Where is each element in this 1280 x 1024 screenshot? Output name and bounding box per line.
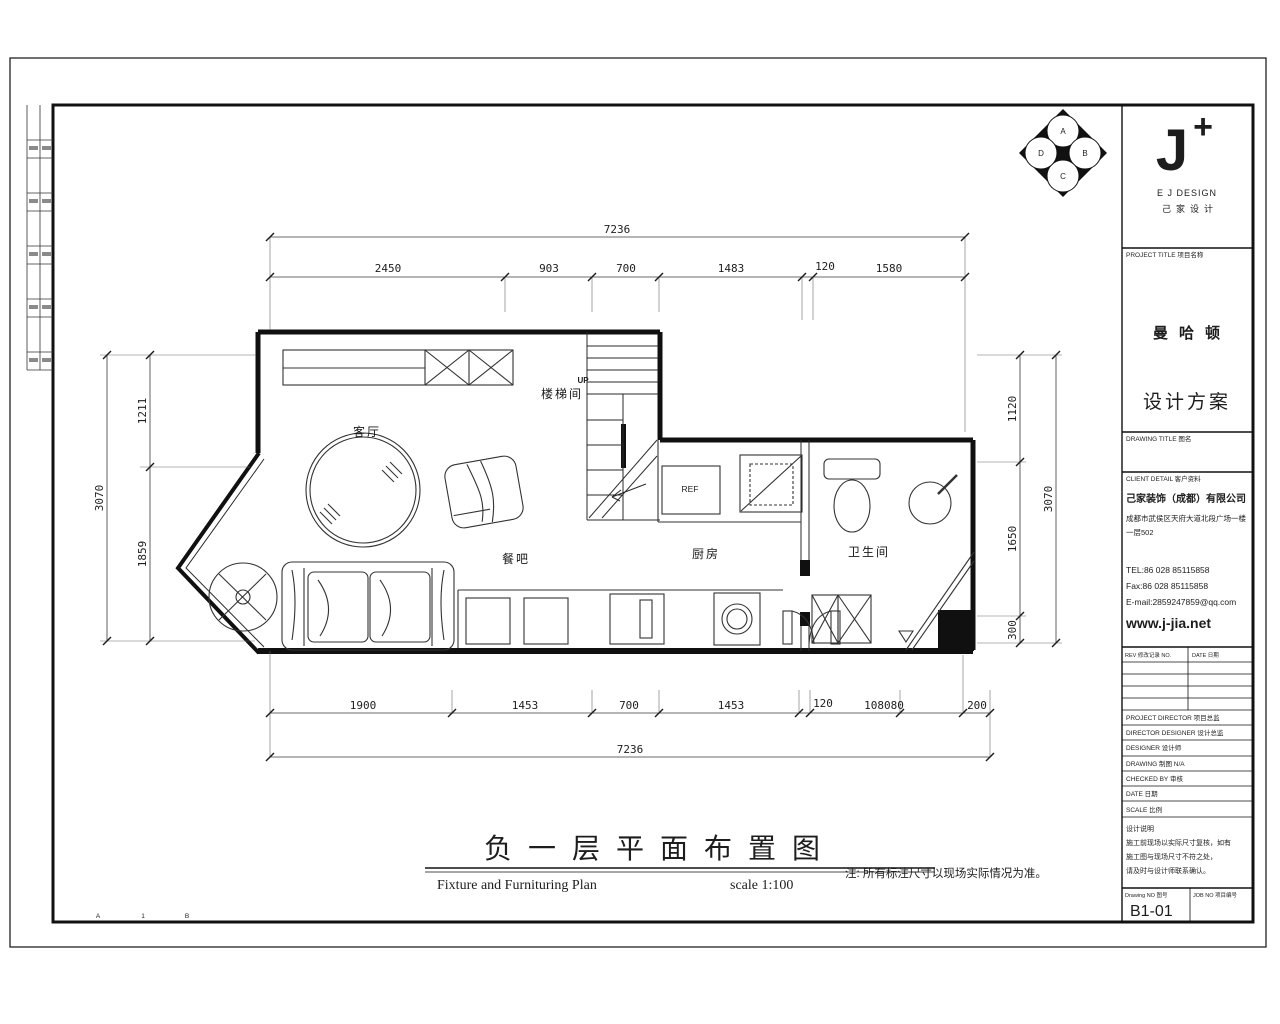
dim-bottom-seg: 700 xyxy=(619,699,639,712)
dim-bottom-seg: 108080 xyxy=(864,699,904,712)
armchair xyxy=(443,454,525,530)
field-director-designer: DIRECTOR DESIGNER 设计总监 xyxy=(1126,728,1224,737)
job-no-label: JOB NO 项目编号 xyxy=(1193,891,1238,899)
field-checked-by: CHECKED BY 审核 xyxy=(1126,774,1183,783)
sheet-scale: scale 1:100 xyxy=(730,878,793,893)
dim-top-seg: 1483 xyxy=(718,262,745,275)
room-label-stair: 楼梯间 xyxy=(541,386,583,401)
columns xyxy=(621,424,974,651)
dim-bottom-seg: 1900 xyxy=(350,699,377,712)
tb-note-line: 请及时与设计师联系确认。 xyxy=(1126,866,1210,875)
logo-stamp: A B C D xyxy=(1019,109,1107,197)
dim-right-seg: 1650 xyxy=(1006,526,1019,553)
client-tel: TEL:86 028 85115858 xyxy=(1126,565,1210,575)
dim-bottom-seg: 1453 xyxy=(512,699,539,712)
stamp-letter-b: B xyxy=(1082,149,1087,158)
logo-j: J xyxy=(1156,118,1188,183)
room-label-living: 客厅 xyxy=(353,424,381,439)
bar-counter xyxy=(458,590,783,648)
client-header: CLIENT DETAIL 客户资料 xyxy=(1126,474,1201,483)
stair xyxy=(587,332,660,520)
floor-plan: 客厅 楼梯间 餐吧 厨房 卫生间 REF UP xyxy=(178,332,974,653)
project-name: 曼哈顿 xyxy=(1153,324,1231,342)
label-ref: REF xyxy=(682,484,699,494)
logo-plus: + xyxy=(1193,108,1213,146)
date-header: DATE 日期 xyxy=(1192,652,1219,659)
tb-note-line: 设计说明 xyxy=(1126,824,1154,833)
tb-note-line: 施工图与现场尺寸不符之处， xyxy=(1126,852,1217,861)
corner-round-table xyxy=(209,563,277,631)
sheet-title-cn: 负一层平面布置图 xyxy=(484,833,836,864)
sheet-borders xyxy=(10,58,1266,947)
dim-left-seg: 1211 xyxy=(136,398,149,425)
dim-right-seg: 300 xyxy=(1006,620,1019,640)
drawing-sheet: A 1 B xyxy=(0,0,1280,1024)
client-website: www.j-jia.net xyxy=(1125,615,1211,631)
grid-ref-a: A xyxy=(96,913,101,920)
client-address1: 成都市武侯区天府大道北段广场一楼 xyxy=(1126,513,1246,523)
wardrobe xyxy=(283,350,513,385)
walls xyxy=(178,332,973,653)
grid-refs: A 1 B xyxy=(96,913,189,920)
field-date: DATE 日期 xyxy=(1126,790,1158,798)
grid-ref-1: 1 xyxy=(141,913,145,920)
logo-en: E J DESIGN xyxy=(1157,188,1217,198)
project-type: 设计方案 xyxy=(1143,391,1231,413)
project-title-header: PROJECT TITLE 项目名称 xyxy=(1126,250,1204,259)
kitchen-fixtures xyxy=(610,440,802,645)
stamp-letter-c: C xyxy=(1060,172,1066,181)
title-block: J + E J DESIGN 己家设计 PROJECT TITLE 项目名称 曼… xyxy=(1122,105,1253,922)
sheet-title-en: Fixture and Furnituring Plan xyxy=(437,878,597,893)
tb-note-line: 施工前现场以实际尺寸复核，如有 xyxy=(1126,838,1231,847)
drawing-no: B1-01 xyxy=(1130,903,1173,920)
dim-bottom-overall: 7236 xyxy=(617,743,644,756)
client-company: 己家装饰（成都）有限公司 xyxy=(1126,492,1246,505)
field-scale: SCALE 比例 xyxy=(1126,805,1162,814)
drawing-no-label: Drawing NO 图号 xyxy=(1125,891,1168,899)
dim-left-seg: 1859 xyxy=(136,541,149,568)
revision-strip xyxy=(27,105,53,370)
field-designer: DESIGNER 设计师 xyxy=(1126,743,1182,752)
dimensions: 7236 2450 903 700 1483 120 1580 1900 145… xyxy=(93,223,1062,761)
rev-header: REV 修改记录 NO. xyxy=(1125,651,1172,659)
grid-ref-b: B xyxy=(185,913,189,920)
dim-bottom-seg: 120 xyxy=(813,697,833,710)
dim-top-overall: 7236 xyxy=(604,223,631,236)
dim-top-seg: 903 xyxy=(539,262,559,275)
room-label-kitchen: 厨房 xyxy=(692,546,720,561)
dim-top-seg: 2450 xyxy=(375,262,402,275)
dim-right-overall: 3070 xyxy=(1042,486,1055,513)
client-fax: Fax:86 028 85115858 xyxy=(1126,581,1208,591)
stamp-letter-d: D xyxy=(1038,149,1044,158)
dim-top-seg: 1580 xyxy=(876,262,903,275)
round-table xyxy=(306,433,420,547)
sheet-title: 负一层平面布置图 Fixture and Furnituring Plan sc… xyxy=(425,833,1047,893)
dim-bottom-seg: 1453 xyxy=(718,699,745,712)
logo-cn: 己家设计 xyxy=(1162,203,1218,214)
dim-bottom-seg: 200 xyxy=(967,699,987,712)
sofa xyxy=(282,562,454,650)
label-up: UP xyxy=(577,376,589,385)
room-label-bar: 餐吧 xyxy=(502,551,530,566)
field-drawing: DRAWING 制图 N/A xyxy=(1126,759,1185,768)
room-label-bath: 卫生间 xyxy=(848,545,890,559)
client-address2: 一层502 xyxy=(1126,528,1154,537)
field-project-director: PROJECT DIRECTOR 项目总监 xyxy=(1126,713,1220,722)
stamp-letter-a: A xyxy=(1060,127,1066,136)
client-email: E-mail:2859247859@qq.com xyxy=(1126,597,1236,607)
dim-top-seg: 700 xyxy=(616,262,636,275)
dim-top-seg: 120 xyxy=(815,260,835,273)
sheet-note: 注: 所有标注尺寸以现场实际情况为准。 xyxy=(845,866,1047,880)
dim-left-overall: 3070 xyxy=(93,485,106,512)
drawing-title-header: DRAWING TITLE 图名 xyxy=(1126,434,1191,443)
dim-right-seg: 1120 xyxy=(1006,396,1019,423)
